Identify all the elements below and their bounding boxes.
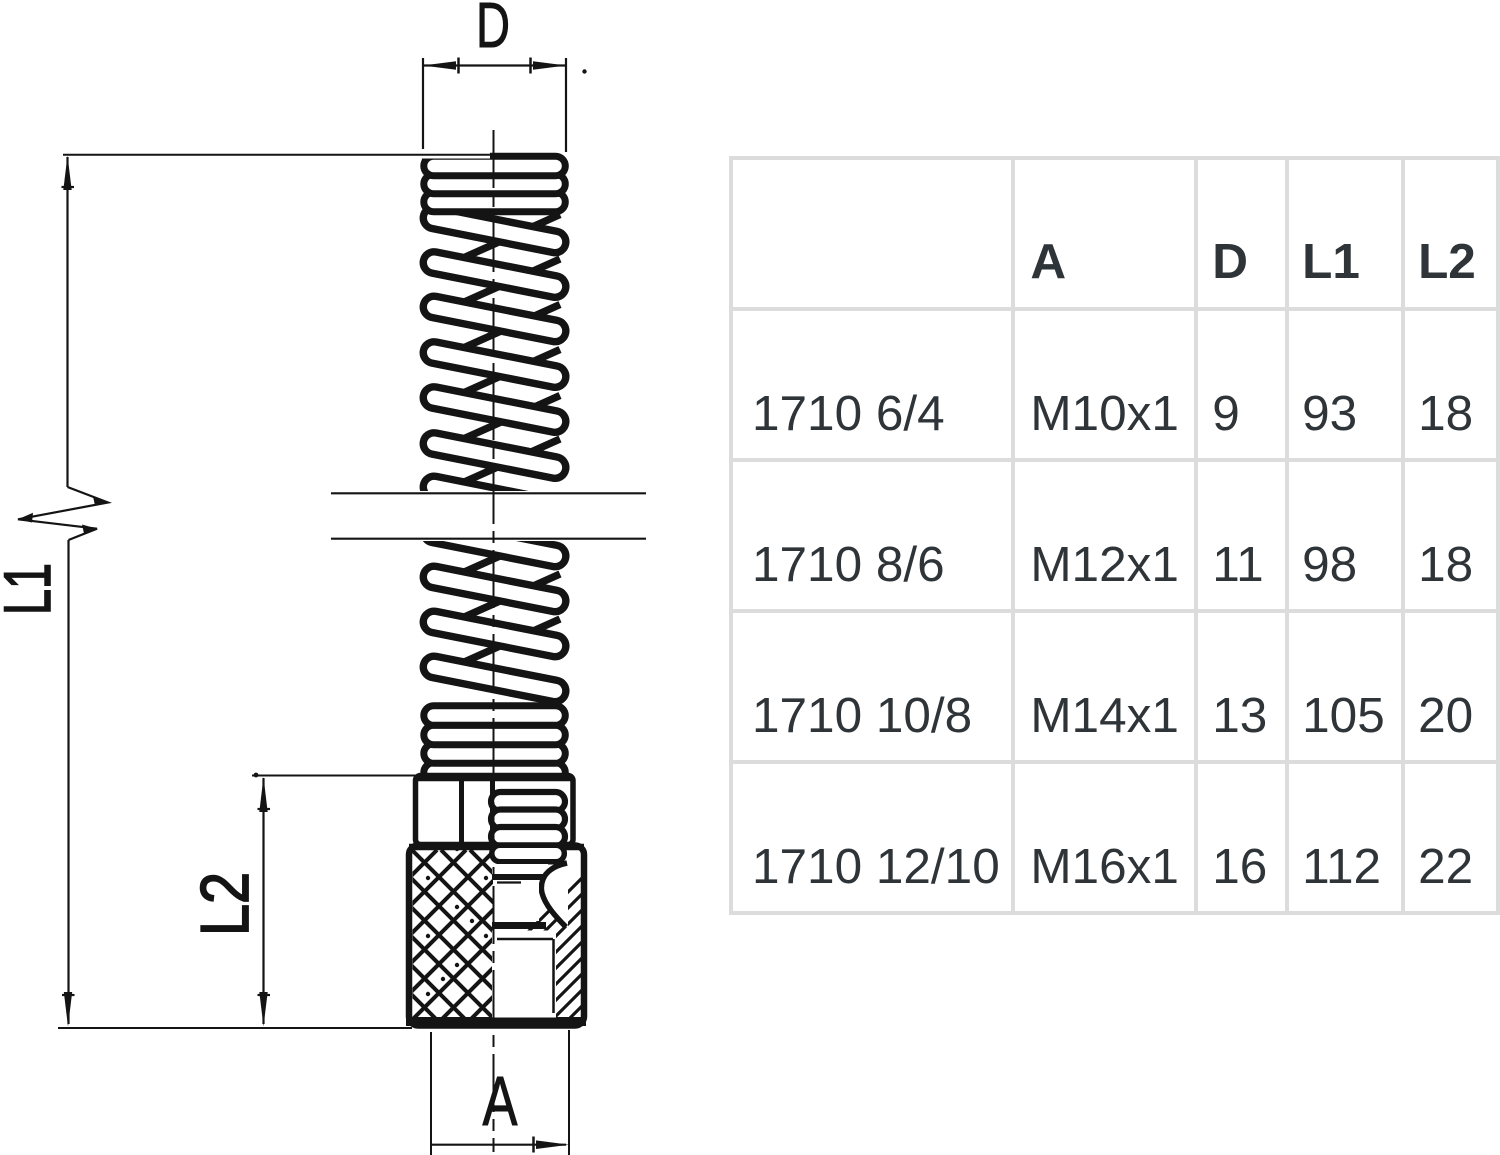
- svg-text:L1: L1: [0, 563, 64, 615]
- svg-text:D: D: [476, 0, 510, 61]
- svg-text:L2: L2: [187, 872, 263, 936]
- svg-text:A: A: [483, 1062, 518, 1140]
